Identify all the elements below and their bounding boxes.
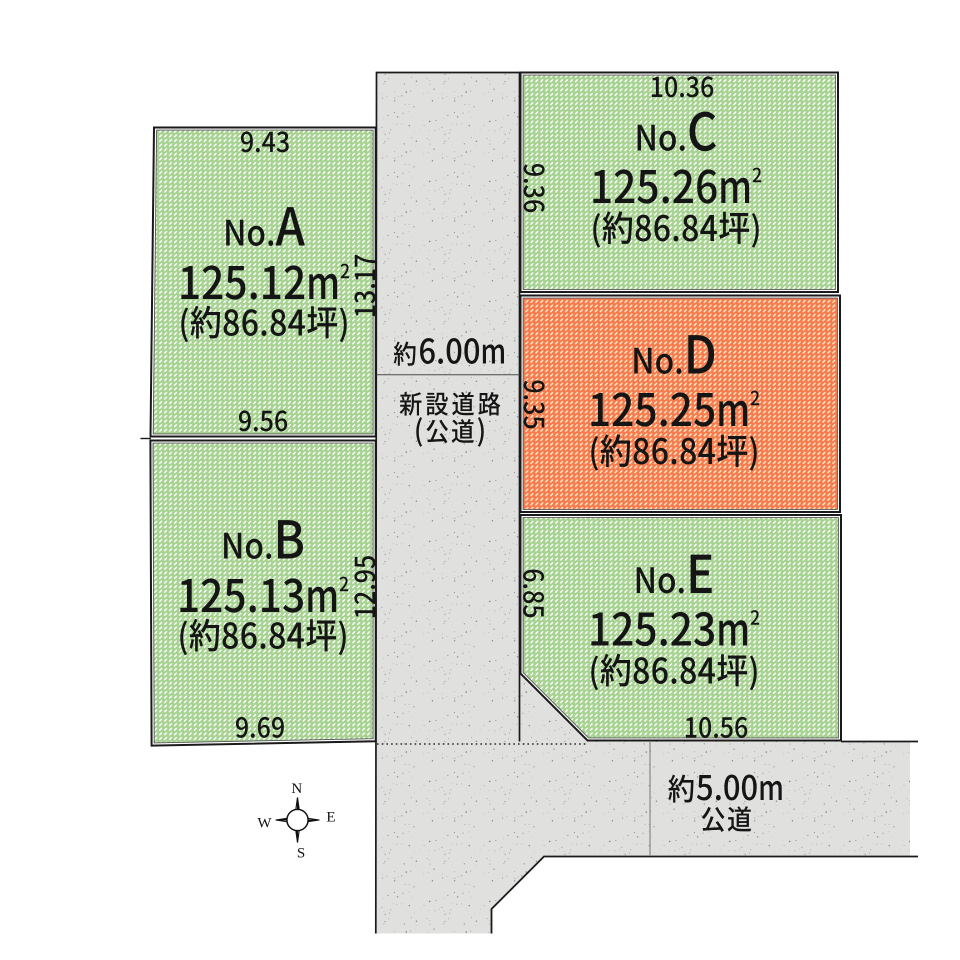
- svg-text:E: E: [326, 810, 335, 826]
- svg-text:W: W: [257, 816, 272, 832]
- svg-text:S: S: [297, 846, 305, 862]
- svg-text:N: N: [291, 781, 302, 797]
